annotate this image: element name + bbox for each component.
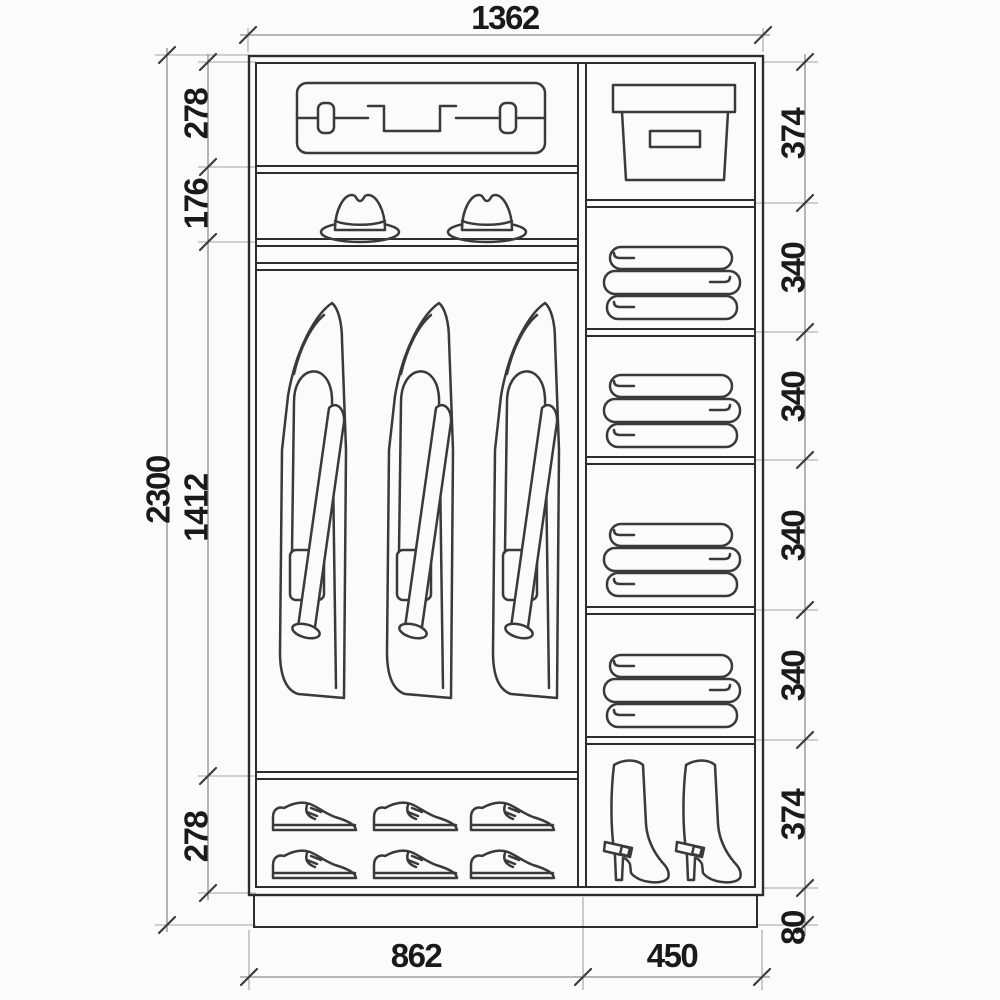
dim-right-shelf-3: 340 (775, 511, 812, 562)
dim-total-width: 1362 (471, 0, 540, 36)
wardrobe-dimension-diagram: 1362 2300 278 176 1412 278 374 340 340 3… (0, 0, 1000, 1000)
folded-linen-icon (604, 247, 740, 319)
coat-icon (387, 303, 453, 698)
dim-left-hat-shelf: 176 (178, 178, 215, 230)
boot-icon (676, 761, 741, 883)
dim-bottom-left-width: 862 (391, 937, 443, 974)
folded-linen-icon (604, 375, 740, 447)
hat-icon (321, 195, 399, 242)
shoe-icon (374, 803, 457, 830)
folded-linen-icon (604, 524, 740, 596)
suitcase-icon (297, 83, 545, 153)
plinth-base (254, 895, 757, 927)
shoe-icon (471, 851, 554, 878)
dim-left-top-shelf: 278 (178, 88, 215, 140)
dim-left-hanging: 1412 (178, 473, 215, 542)
coat-icon (280, 303, 346, 698)
dim-total-height: 2300 (140, 456, 177, 524)
dim-right-shelf-4: 340 (775, 651, 812, 702)
coat-icon (493, 303, 559, 698)
contents-icons (273, 83, 741, 882)
dim-plinth-height: 80 (775, 911, 812, 945)
shoe-icon (273, 803, 356, 830)
dim-right-boots: 374 (775, 788, 812, 841)
storage-box-icon (613, 85, 735, 180)
diagram-canvas: 1362 2300 278 176 1412 278 374 340 340 3… (0, 0, 1000, 1000)
folded-linen-icon (604, 655, 740, 727)
boot-icon (604, 761, 669, 883)
dim-left-shoe-shelf: 278 (178, 811, 215, 863)
dim-bottom-right-width: 450 (647, 937, 698, 974)
dim-right-shelf-1: 340 (775, 243, 812, 294)
hat-icon (448, 195, 526, 242)
dim-right-box: 374 (775, 107, 812, 160)
dim-right-shelf-2: 340 (775, 372, 812, 423)
shoe-icon (374, 851, 457, 878)
shoe-icon (471, 803, 554, 830)
shoe-icon (273, 851, 356, 878)
